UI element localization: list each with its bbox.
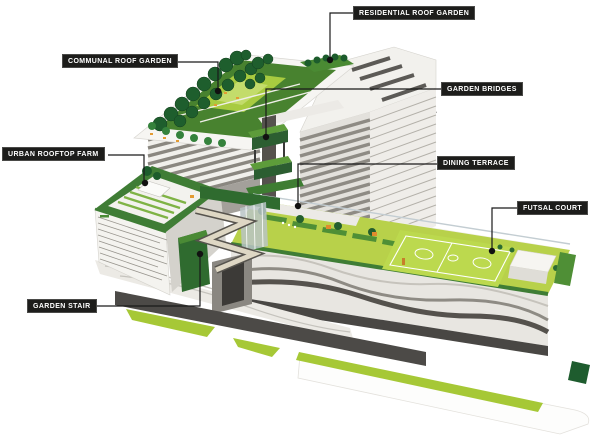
callout-dining-terrace: DINING TERRACE: [437, 156, 515, 170]
dot-dining-terrace: [295, 203, 301, 209]
callout-urban-rooftop-farm: URBAN ROOFTOP FARM: [2, 147, 105, 161]
callout-garden-stair: GARDEN STAIR: [27, 299, 97, 313]
callout-garden-bridges: GARDEN BRIDGES: [441, 82, 523, 96]
diagram-canvas: RESIDENTIAL ROOF GARDEN COMMUNAL ROOF GA…: [0, 0, 600, 437]
callout-futsal-court: FUTSAL COURT: [517, 201, 588, 215]
dot-garden-bridges: [263, 134, 269, 140]
leader-residential-roof-garden: [330, 13, 354, 58]
callout-communal-roof-garden: COMMUNAL ROOF GARDEN: [62, 54, 178, 68]
dot-communal-roof-garden: [215, 88, 221, 94]
dot-futsal-court: [489, 248, 495, 254]
callout-residential-roof-garden: RESIDENTIAL ROOF GARDEN: [353, 6, 475, 20]
dot-garden-stair: [197, 251, 203, 257]
farm-logo: [100, 215, 109, 218]
ground-hedge: [568, 361, 590, 384]
dot-residential-roof-garden: [327, 57, 333, 63]
dot-urban-rooftop-farm: [142, 180, 148, 186]
